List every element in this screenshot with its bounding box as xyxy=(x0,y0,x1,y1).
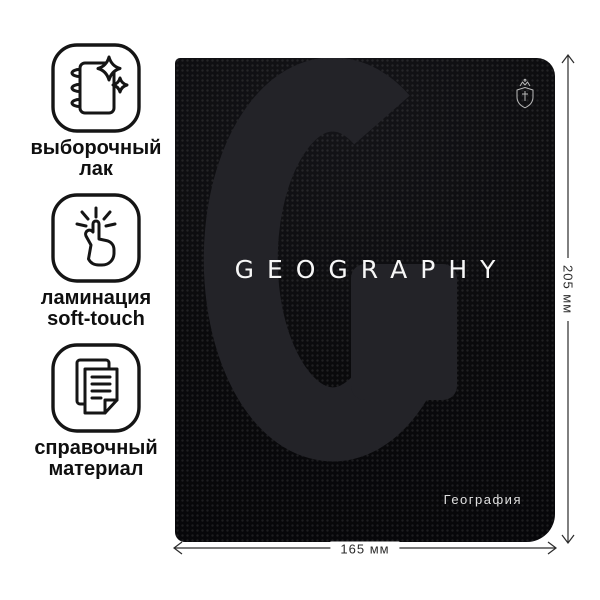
crown-shield-emblem-icon xyxy=(511,78,539,112)
feature-label-line: выборочный xyxy=(31,138,162,159)
feature-label: ламинация soft-touch xyxy=(41,288,151,330)
feature-label-line: справочный xyxy=(34,438,157,459)
height-dimension: 205 мм xyxy=(560,52,576,546)
feature-label: справочный материал xyxy=(34,438,157,480)
height-dimension-label: 205 мм xyxy=(560,258,577,321)
notebook-cover: GEOGRAPHY География xyxy=(175,58,555,542)
feature-selective-varnish: выборочный лак xyxy=(0,43,192,180)
feature-label-line: материал xyxy=(34,459,157,480)
feature-reference-material: справочный материал xyxy=(0,343,192,480)
soft-touch-tap-icon xyxy=(51,193,141,283)
width-dimension: 165 мм xyxy=(171,540,559,557)
reference-sheets-icon xyxy=(51,343,141,433)
feature-label-line: ламинация xyxy=(41,288,151,309)
notebook-varnish-icon xyxy=(51,43,141,133)
cover-title: GEOGRAPHY xyxy=(175,255,555,284)
feature-soft-touch: ламинация soft-touch xyxy=(0,193,192,330)
feature-label-line: soft-touch xyxy=(41,309,151,330)
cover-subject-label: География xyxy=(444,492,522,507)
feature-label: выборочный лак xyxy=(31,138,162,180)
product-card: выборочный лак ламинация soft-touch xyxy=(0,0,600,600)
feature-label-line: лак xyxy=(31,159,162,180)
letter-g-watermark xyxy=(175,58,555,542)
width-dimension-label: 165 мм xyxy=(330,541,399,556)
